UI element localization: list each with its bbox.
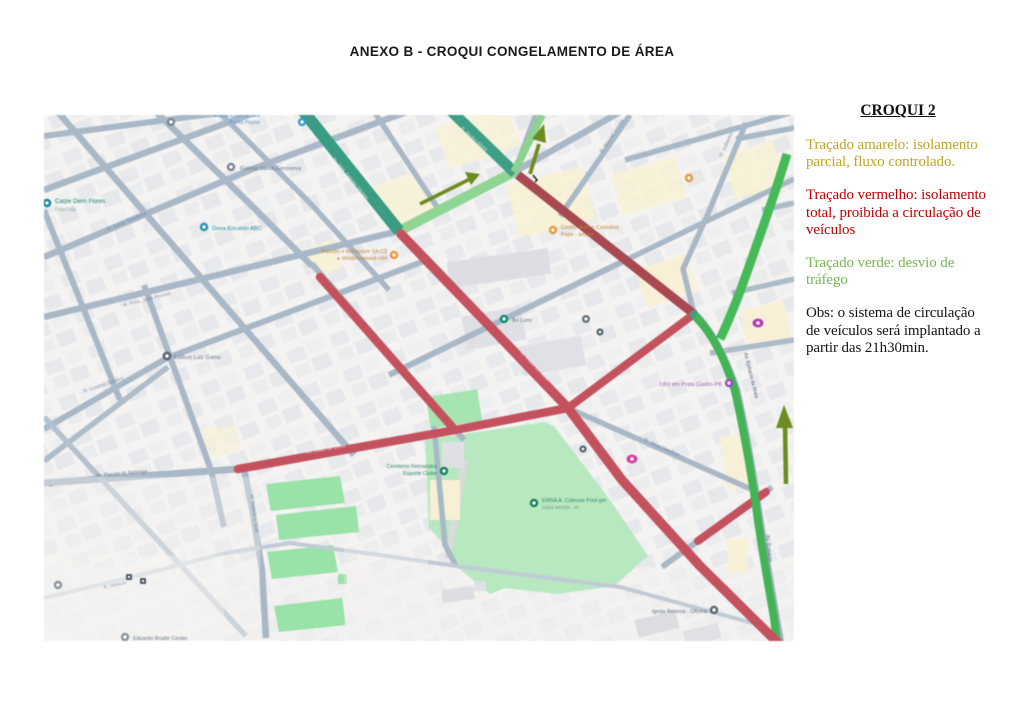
svg-text:Igreja Renova - Oficina: Igreja Renova - Oficina [652, 609, 707, 615]
svg-text:Dona Encanto ABC: Dona Encanto ABC [212, 226, 262, 232]
svg-text:Pape - ampre: Pape - ampre [561, 232, 594, 238]
svg-text:B+ Limc: B+ Limc [512, 318, 533, 324]
svg-text:EMSA A. Cateuse Foot gm: EMSA A. Cateuse Foot gm [542, 498, 607, 504]
svg-text:Centro Som e Carimbos: Centro Som e Carimbos [561, 225, 619, 231]
svg-text:ESEM Com. N. Sra: ESEM Com. N. Sra [214, 115, 260, 119]
svg-text:▸ Westmoreland +84: ▸ Westmoreland +84 [338, 256, 388, 262]
svg-text:Cemiterio Fernandes: Cemiterio Fernandes [387, 464, 438, 470]
svg-text:Edificio Luiz Gama: Edificio Luiz Gama [174, 355, 222, 361]
svg-text:LBV em Prata Castro-PB: LBV em Prata Castro-PB [660, 382, 722, 388]
svg-text:casa venda - m: casa venda - m [542, 505, 579, 511]
svg-text:Foto Loja: Foto Loja [55, 207, 76, 213]
svg-text:Eduardo Braille Center: Eduardo Braille Center [133, 636, 188, 641]
svg-text:Transito e transporte SA C3: Transito e transporte SA C3 [321, 249, 387, 255]
svg-text:. Punto Posse: . Punto Posse [226, 120, 260, 126]
svg-text:Carpe Diem Flores: Carpe Diem Flores [55, 199, 105, 205]
svg-text:Esporte Clube: Esporte Clube [403, 471, 437, 477]
svg-text:←: ← [48, 482, 55, 489]
svg-text:Galeria Santa Genoveva: Galeria Santa Genoveva [240, 166, 302, 172]
